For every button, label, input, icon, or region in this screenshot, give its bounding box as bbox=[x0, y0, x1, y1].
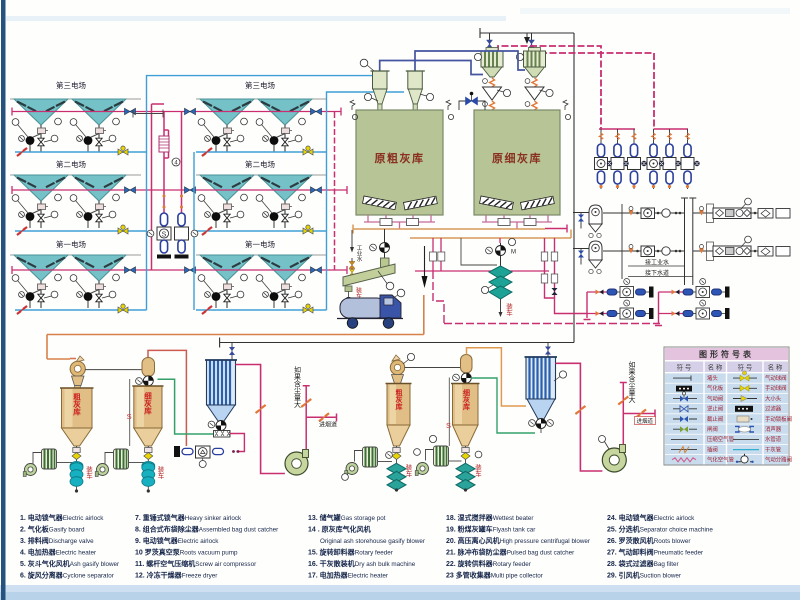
svg-text:M: M bbox=[511, 250, 516, 256]
svg-text:27. 气动卸料阀Pneumatic feeder: 27. 气动卸料阀Pneumatic feeder bbox=[607, 548, 703, 557]
svg-text:水管道: 水管道 bbox=[765, 435, 782, 443]
svg-text:1. 电动锁气器Electric airlock: 1. 电动锁气器Electric airlock bbox=[20, 513, 104, 522]
svg-text:22. 旋转供料器Rotary feeder: 22. 旋转供料器Rotary feeder bbox=[446, 559, 531, 568]
svg-text:6. 旋风分离器Cyclone separator: 6. 旋风分离器Cyclone separator bbox=[20, 571, 114, 580]
svg-text:接工业水: 接工业水 bbox=[645, 259, 669, 267]
svg-text:18. 湿式搅拌器Wettest beater: 18. 湿式搅拌器Wettest beater bbox=[446, 513, 534, 522]
svg-text:S: S bbox=[162, 232, 167, 239]
svg-text:10 罗茨真空泵Roots vacuum pump: 10 罗茨真空泵Roots vacuum pump bbox=[135, 548, 238, 557]
svg-text:气动分路阀: 气动分路阀 bbox=[765, 456, 792, 464]
svg-text:逆止阀: 逆止阀 bbox=[707, 405, 723, 413]
svg-text:细灰库: 细灰库 bbox=[463, 388, 471, 411]
svg-text:15. 旋转卸料器Rotary feeder: 15. 旋转卸料器Rotary feeder bbox=[308, 548, 393, 557]
svg-text:气动阀: 气动阀 bbox=[707, 394, 723, 402]
svg-text:14 . 原灰库气化风机: 14 . 原灰库气化风机 bbox=[308, 525, 371, 534]
svg-text:截止阀: 截止阀 bbox=[707, 415, 723, 423]
svg-text:堵头: 堵头 bbox=[707, 374, 718, 382]
svg-text:13. 储气罐Gas storage pot: 13. 储气罐Gas storage pot bbox=[308, 513, 386, 522]
svg-text:手动锁板阀: 手动锁板阀 bbox=[765, 415, 792, 423]
svg-text:闸阀: 闸阀 bbox=[707, 425, 718, 433]
svg-text:第二电场: 第二电场 bbox=[56, 159, 86, 169]
svg-text:气动球阀: 气动球阀 bbox=[765, 374, 787, 382]
svg-text:大小头: 大小头 bbox=[765, 394, 782, 402]
svg-text:消声器: 消声器 bbox=[765, 425, 782, 433]
svg-text:进烟道: 进烟道 bbox=[319, 421, 337, 429]
svg-text:细灰库: 细灰库 bbox=[143, 391, 152, 416]
svg-text:进烟道: 进烟道 bbox=[637, 417, 654, 425]
svg-text:24. 电动锁气器Electric airlock: 24. 电动锁气器Electric airlock bbox=[607, 513, 695, 522]
svg-text:压缩空气管: 压缩空气管 bbox=[707, 435, 735, 443]
svg-text:16. 干灰散装机Dry ash bulk machine: 16. 干灰散装机Dry ash bulk machine bbox=[308, 559, 416, 568]
svg-text:20. 高压离心风机High pressure centri: 20. 高压离心风机High pressure centrifugal blow… bbox=[446, 536, 590, 545]
svg-text:符 号: 符 号 bbox=[738, 363, 753, 372]
svg-text:3. 排料阀Discharge valve: 3. 排料阀Discharge valve bbox=[20, 536, 94, 545]
svg-text:第一电场: 第一电场 bbox=[56, 239, 86, 249]
svg-text:4. 电加热器Electric heater: 4. 电加热器Electric heater bbox=[20, 548, 96, 557]
svg-text:工业水: 工业水 bbox=[356, 245, 363, 262]
svg-text:29. 引风机Suction blower: 29. 引风机Suction blower bbox=[607, 571, 681, 580]
svg-text:干灰管: 干灰管 bbox=[765, 445, 782, 453]
svg-text:26. 罗茨散风机Roots blower: 26. 罗茨散风机Roots blower bbox=[607, 536, 690, 545]
svg-text:21. 脉冲布袋防尘器Pulsed bag dust cat: 21. 脉冲布袋防尘器Pulsed bag dust catcher bbox=[446, 548, 574, 557]
svg-text:图形符号表: 图形符号表 bbox=[699, 349, 754, 359]
svg-text:5. 灰斗气化风机Ash gasify blower: 5. 灰斗气化风机Ash gasify blower bbox=[20, 559, 119, 568]
svg-text:19. 粉煤灰罐车Flyash tank car: 19. 粉煤灰罐车Flyash tank car bbox=[446, 525, 535, 534]
svg-text:第三电场: 第三电场 bbox=[245, 80, 275, 90]
svg-text:气化板: 气化板 bbox=[707, 384, 724, 392]
svg-text:名 称: 名 称 bbox=[708, 363, 723, 372]
svg-text:23 多管收集器Multi pipe collector: 23 多管收集器Multi pipe collector bbox=[446, 571, 543, 580]
svg-text:粗灰库: 粗灰库 bbox=[395, 388, 403, 411]
svg-text:气化空气管: 气化空气管 bbox=[707, 456, 735, 464]
svg-text:2. 气化板Gasify board: 2. 气化板Gasify board bbox=[20, 525, 85, 534]
svg-text:S: S bbox=[127, 412, 132, 421]
svg-text:25. 分选机Separator choice machin: 25. 分选机Separator choice machine bbox=[607, 525, 713, 534]
svg-text:第二电场: 第二电场 bbox=[245, 159, 275, 169]
svg-text:12. 冷冻干燥器Freeze dryer: 12. 冷冻干燥器Freeze dryer bbox=[135, 571, 217, 580]
svg-text:7. 重锤式锁气器Heavy sinker airlock: 7. 重锤式锁气器Heavy sinker airlock bbox=[135, 513, 242, 522]
svg-text:Original ash storehouse gasify: Original ash storehouse gasify blower bbox=[320, 538, 425, 545]
svg-text:原粗灰库: 原粗灰库 bbox=[375, 151, 425, 165]
svg-text:第三电场: 第三电场 bbox=[56, 80, 86, 90]
svg-text:17. 电加热器Electric heater: 17. 电加热器Electric heater bbox=[308, 571, 388, 580]
svg-text:9. 电动锁气器Electric airlock: 9. 电动锁气器Electric airlock bbox=[135, 536, 219, 545]
svg-text:插阀: 插阀 bbox=[707, 445, 718, 453]
svg-text:第一电场: 第一电场 bbox=[245, 239, 275, 249]
svg-text:如果含尘量大: 如果含尘量大 bbox=[294, 365, 302, 409]
svg-text:28. 袋式过滤器Bag filter: 28. 袋式过滤器Bag filter bbox=[607, 559, 679, 568]
svg-text:原细灰库: 原细灰库 bbox=[492, 151, 542, 165]
svg-text:S: S bbox=[446, 421, 451, 430]
svg-text:粗灰库: 粗灰库 bbox=[72, 392, 81, 417]
svg-text:8. 组合式布袋除尘器Assembled bag dust: 8. 组合式布袋除尘器Assembled bag dust catcher bbox=[135, 525, 278, 534]
svg-text:名 称: 名 称 bbox=[768, 363, 783, 372]
svg-text:符 号: 符 号 bbox=[677, 363, 692, 372]
svg-text:11. 螺杆空气压缩机Screw air compresso: 11. 螺杆空气压缩机Screw air compressor bbox=[135, 559, 256, 568]
svg-text:如果含尘量大: 如果含尘量大 bbox=[628, 360, 636, 404]
svg-text:过滤器: 过滤器 bbox=[765, 405, 782, 413]
svg-text:手动球阀: 手动球阀 bbox=[765, 384, 787, 392]
svg-text:接下水道: 接下水道 bbox=[645, 269, 669, 277]
